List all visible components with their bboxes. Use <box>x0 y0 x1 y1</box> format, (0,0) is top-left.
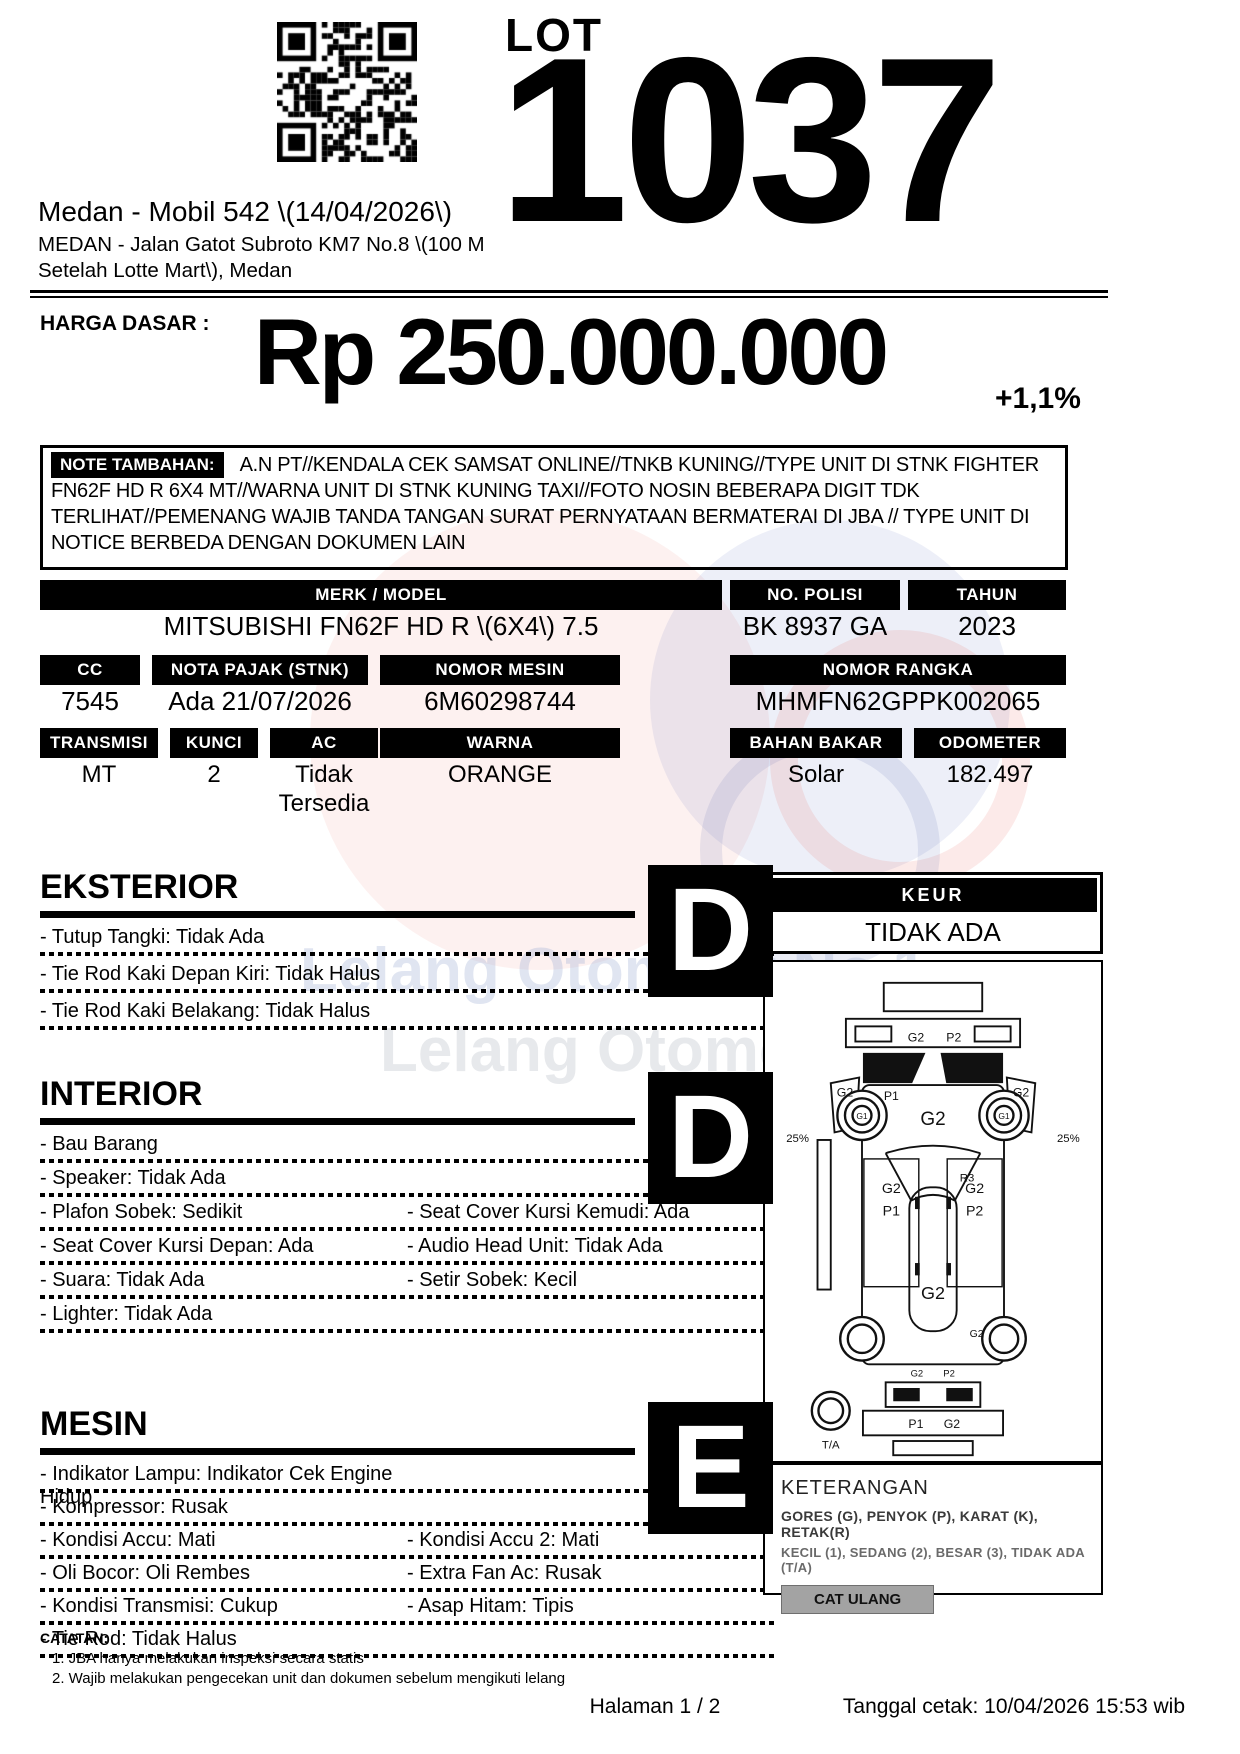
grade-letter-interior: D <box>668 1071 753 1203</box>
auction-title: Medan - Mobil 542 \(14/04/2026\) <box>38 196 452 228</box>
inspection-item-left: - Seat Cover Kursi Depan: Ada <box>40 1235 407 1258</box>
section-underline <box>40 1118 635 1125</box>
dotted-separator <box>40 1555 775 1559</box>
spec-header-bahan-bakar: BAHAN BAKAR <box>730 728 902 758</box>
headlight-bar <box>886 1382 981 1407</box>
spec-header-tahun: TAHUN <box>908 580 1066 610</box>
auction-address-line2: Setelah Lotte Mart\), Medan <box>38 259 292 283</box>
diagram-label: P2 <box>946 1031 961 1045</box>
inspection-item-row: - Lighter: Tidak Ada <box>40 1303 775 1337</box>
dotted-separator <box>40 1227 775 1231</box>
inspection-item-row: - Plafon Sobek: Sedikit- Seat Cover Kurs… <box>40 1201 775 1235</box>
dotted-separator <box>40 1295 775 1299</box>
spec-header-merk-model: MERK / MODEL <box>40 580 722 610</box>
grade-box-eksterior: D <box>648 865 773 997</box>
dotted-separator <box>40 1026 775 1030</box>
diagram-label: G2 <box>965 1181 984 1197</box>
inspection-item-row: - Suara: Tidak Ada- Setir Sobek: Kecil <box>40 1269 775 1303</box>
inspection-item-left: - Speaker: Tidak Ada <box>40 1167 407 1190</box>
spec-header-kunci: KUNCI <box>170 728 258 758</box>
inspection-item-left: - Kompressor: Rusak <box>40 1496 407 1519</box>
section-underline <box>40 1448 635 1455</box>
grade-letter-mesin: E <box>671 1401 750 1533</box>
spec-header-no-polisi: NO. POLISI <box>730 580 900 610</box>
keur-header: KEUR <box>769 878 1097 912</box>
diagram-label: 25% <box>1057 1133 1080 1145</box>
diagram-label: P1 <box>908 1417 923 1431</box>
diagram-label: G2 <box>1013 1085 1030 1099</box>
section-underline <box>40 911 635 918</box>
inspection-item-left: - Tutup Tangki: Tidak Ada <box>40 926 407 949</box>
keterangan-box: KETERANGAN GORES (G), PENYOK (P), KARAT … <box>763 1463 1103 1595</box>
diagram-label: G1 <box>998 1111 1010 1121</box>
inspection-item-left: - Plafon Sobek: Sedikit <box>40 1201 407 1224</box>
grade-box-mesin: E <box>648 1402 773 1534</box>
auction-address-line1: MEDAN - Jalan Gatot Subroto KM7 No.8 \(1… <box>38 233 485 257</box>
spec-value-merk-model: MITSUBISHI FN62F HD R \(6X4\) 7.5 <box>40 612 722 641</box>
price-change-badge: +1,1% <box>995 382 1081 416</box>
dotted-separator <box>40 1261 775 1265</box>
diagram-label: P2 <box>966 1204 983 1220</box>
cat-ulang-badge: CAT ULANG <box>781 1585 934 1614</box>
inspection-item-right: - Asap Hitam: Tipis <box>407 1595 574 1618</box>
rear-plate <box>884 983 982 1011</box>
rear-bumper <box>846 1019 1020 1047</box>
keterangan-legend-line1: GORES (G), PENYOK (P), KARAT (K), RETAK(… <box>781 1508 1085 1540</box>
dotted-separator <box>40 1329 775 1333</box>
auction-lot-sheet: Lelang Otomotif No.1 Lelang Otomotif LOT… <box>0 0 1240 1754</box>
keur-box: KEUR TIDAK ADA <box>763 872 1103 954</box>
spec-value-tahun: 2023 <box>908 612 1066 641</box>
spec-header-warna: WARNA <box>380 728 620 758</box>
diagram-label: G2 <box>944 1417 961 1431</box>
fuel-tank-bar <box>818 1140 831 1290</box>
diagram-label: G2 <box>921 1283 945 1303</box>
inspection-item-left: - Bau Barang <box>40 1133 407 1156</box>
doors <box>864 1159 1002 1287</box>
diagram-label: G2 <box>882 1181 901 1197</box>
qr-code <box>277 22 417 162</box>
note-tambahan-label: NOTE TAMBAHAN: <box>51 452 224 478</box>
print-date: Tanggal cetak: 10/04/2026 15:53 wib <box>795 1695 1185 1719</box>
inspection-item-right: - Extra Fan Ac: Rusak <box>407 1562 602 1585</box>
diagram-label: 25% <box>786 1133 809 1145</box>
inspection-item-left: - Tie Rod Kaki Belakang: Tidak Halus <box>40 1000 407 1023</box>
diagram-label: G1 <box>856 1111 868 1121</box>
diagram-label: G2 <box>920 1109 945 1130</box>
inspection-item-left: - Oli Bocor: Oli Rembes <box>40 1562 407 1585</box>
inspection-item-row: - Oli Bocor: Oli Rembes- Extra Fan Ac: R… <box>40 1562 775 1595</box>
spec-value-nomor-mesin: 6M60298744 <box>380 687 620 716</box>
truck-top-view-diagram: G2P2G2G2G2G1G1P125%25%R3G2P1G2P2G2G2G2P2… <box>765 962 1101 1459</box>
lot-number: 1037 <box>498 28 997 251</box>
spec-value-odometer: 182.497 <box>914 760 1066 789</box>
spec-header-ac: AC <box>270 728 378 758</box>
note-tambahan-box: NOTE TAMBAHAN: A.N PT//KENDALA CEK SAMSA… <box>40 445 1068 570</box>
dotted-separator <box>40 1621 775 1625</box>
diagram-label: T/A <box>822 1440 840 1452</box>
base-price-value: Rp 250.000.000 <box>140 298 1000 406</box>
inspection-item-row: - Kondisi Transmisi: Cukup- Asap Hitam: … <box>40 1595 775 1628</box>
inspection-item-left: - Tie Rod Kaki Depan Kiri: Tidak Halus <box>40 963 407 986</box>
spec-value-bahan-bakar: Solar <box>730 760 902 789</box>
rear-black-panels <box>863 1053 1003 1083</box>
spec-value-no-polisi: BK 8937 GA <box>730 612 900 641</box>
diagram-label: P1 <box>883 1204 900 1220</box>
spec-header-nomor-mesin: NOMOR MESIN <box>380 655 620 685</box>
spec-value-transmisi: MT <box>40 760 158 789</box>
keur-value: TIDAK ADA <box>766 915 1100 949</box>
spec-value-ac: Tidak Tersedia <box>270 760 378 818</box>
inspection-item-right: - Audio Head Unit: Tidak Ada <box>407 1235 663 1258</box>
spec-value-cc: 7545 <box>40 687 140 716</box>
diagram-label: G2 <box>911 1369 924 1380</box>
car-diagram-box: G2P2G2G2G2G1G1P125%25%R3G2P1G2P2G2G2G2P2… <box>763 960 1103 1463</box>
footer-note-2: 2. Wajib melakukan pengecekan unit dan d… <box>52 1670 565 1687</box>
spec-header-nota-pajak-stnk-: NOTA PAJAK (STNK) <box>152 655 368 685</box>
keterangan-legend-line2: KECIL (1), SEDANG (2), BESAR (3), TIDAK … <box>781 1545 1085 1575</box>
spec-header-transmisi: TRANSMISI <box>40 728 158 758</box>
inspection-item-left: - Lighter: Tidak Ada <box>40 1303 407 1326</box>
divider-rule-top <box>30 290 1108 293</box>
inspection-item-row: - Seat Cover Kursi Depan: Ada- Audio Hea… <box>40 1235 775 1269</box>
front-bumper <box>863 1411 1003 1436</box>
diagram-label: P1 <box>884 1089 899 1103</box>
inspection-item-right: - Seat Cover Kursi Kemudi: Ada <box>407 1201 689 1224</box>
spec-header-odometer: ODOMETER <box>914 728 1066 758</box>
inspection-item-left: - Kondisi Accu: Mati <box>40 1529 407 1552</box>
catatan-label: CATATAN: <box>40 1630 108 1646</box>
spec-value-warna: ORANGE <box>380 760 620 789</box>
inspection-item-right: - Kondisi Accu 2: Mati <box>407 1529 599 1552</box>
page-number: Halaman 1 / 2 <box>540 1695 770 1719</box>
rear-wheels <box>840 1317 1026 1361</box>
keterangan-title: KETERANGAN <box>781 1477 1085 1500</box>
front-plate <box>893 1441 973 1455</box>
spec-value-nomor-rangka: MHMFN62GPPK002065 <box>730 687 1066 716</box>
inspection-item-right: - Setir Sobek: Kecil <box>407 1269 577 1292</box>
diagram-label: P2 <box>943 1369 955 1380</box>
diagram-label: G2 <box>970 1329 984 1340</box>
inspection-item-left: - Kondisi Transmisi: Cukup <box>40 1595 407 1618</box>
spec-value-nota-pajak-stnk-: Ada 21/07/2026 <box>152 687 368 716</box>
inspection-item-left: - Suara: Tidak Ada <box>40 1269 407 1292</box>
spare-wheel <box>812 1392 850 1430</box>
grade-letter-eksterior: D <box>668 864 753 996</box>
spec-value-kunci: 2 <box>170 760 258 789</box>
spec-header-nomor-rangka: NOMOR RANGKA <box>730 655 1066 685</box>
grade-box-interior: D <box>648 1072 773 1204</box>
door-ticks <box>915 1197 951 1276</box>
diagram-label: G2 <box>837 1085 854 1099</box>
footer-note-1: 1. JBA hanya melakukan inspeksi secara s… <box>52 1650 364 1667</box>
dotted-separator <box>40 1588 775 1592</box>
spec-header-cc: CC <box>40 655 140 685</box>
diagram-label: G2 <box>908 1031 925 1045</box>
inspection-item-row: - Tie Rod Kaki Belakang: Tidak Halus <box>40 1000 775 1037</box>
